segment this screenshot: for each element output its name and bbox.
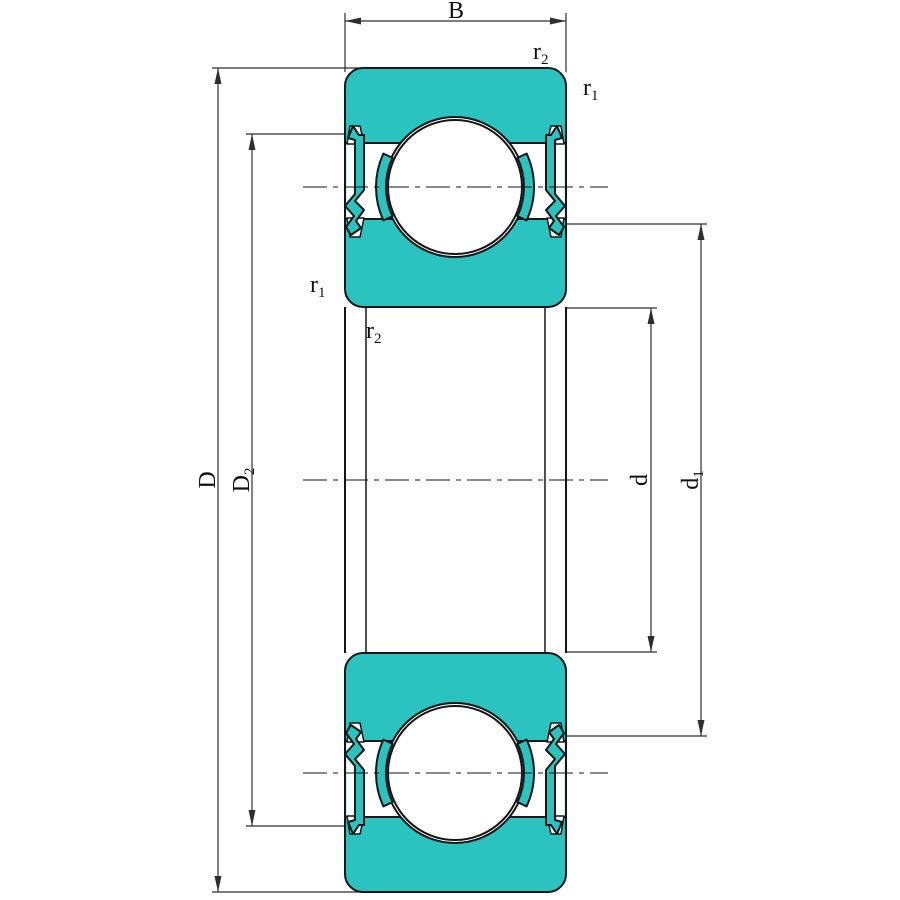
arrow-left-icon — [345, 18, 361, 25]
bearing-drawing: B r2 r1 r1 r2 D D2 d d1 — [0, 0, 900, 900]
label-d: d — [627, 474, 653, 486]
label-D2: D2 — [229, 468, 258, 493]
arrow-down-icon — [215, 876, 222, 892]
arrow-down-icon — [648, 636, 655, 652]
label-r2-bore: r2 — [366, 318, 382, 347]
label-D: D — [195, 471, 221, 488]
label-r1-outer: r1 — [583, 75, 599, 104]
extension-lines-D2 — [246, 134, 345, 826]
arrow-up-icon — [648, 308, 655, 324]
arrow-down-icon — [249, 810, 256, 826]
label-d1: d1 — [678, 470, 707, 490]
arrow-right-icon — [550, 18, 566, 25]
label-r1-inner: r1 — [310, 272, 326, 301]
dimension-D2 — [246, 134, 345, 826]
arrow-up-icon — [698, 224, 705, 240]
bearing-cross-section-diagram: B r2 r1 r1 r2 D D2 d d1 — [0, 0, 900, 900]
arrow-down-icon — [698, 720, 705, 736]
label-B: B — [448, 0, 464, 24]
arrow-up-icon — [215, 68, 222, 84]
arrow-up-icon — [249, 134, 256, 150]
label-r2-outer: r2 — [533, 39, 549, 68]
